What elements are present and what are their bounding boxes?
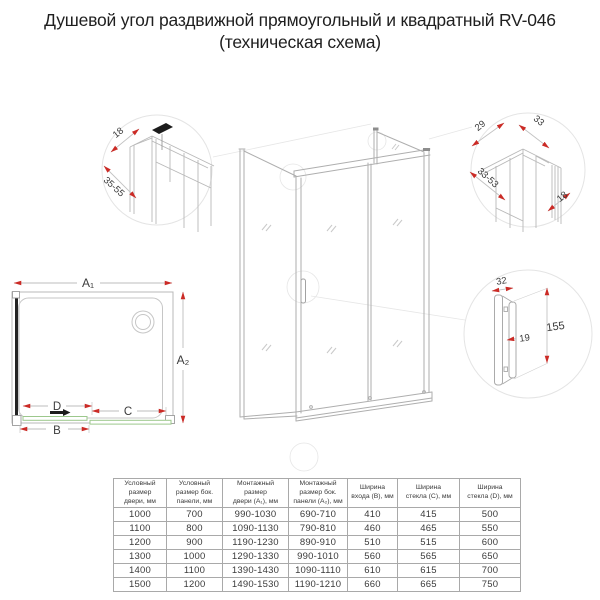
column-header: Монтажный размер бок. панели (A₂), мм	[289, 479, 348, 508]
table-cell: 1490-1530	[223, 578, 289, 592]
table-cell: 1500	[114, 578, 167, 592]
detail-handle: 32 19 155	[492, 275, 566, 385]
table-row: 1100 800 1090-1130 790-810 460 465 550	[114, 522, 521, 536]
detail-top-left: 18 35-55	[101, 123, 214, 232]
plan-label-b: B	[53, 425, 61, 437]
table-row: 1300 1000 1290-1330 990-1010 560 565 650	[114, 550, 521, 564]
plan-view: A₁ A₂ D C B	[12, 276, 190, 437]
table-cell: 550	[460, 522, 521, 536]
table-cell: 1190-1230	[223, 536, 289, 550]
table-cell: 790-810	[289, 522, 348, 536]
side-panel-glass	[15, 296, 18, 417]
post-caps	[373, 128, 430, 152]
column-header: Ширина стекла (C), мм	[398, 479, 460, 508]
plan-outline	[12, 292, 173, 423]
table-cell: 600	[460, 536, 521, 550]
door-handle-3d	[301, 279, 306, 303]
roller-bracket	[152, 123, 173, 134]
page: Душевой угол раздвижной прямоугольный и …	[0, 0, 600, 600]
table-cell: 565	[398, 550, 460, 564]
table-cell: 665	[398, 578, 460, 592]
table-cell: 610	[348, 564, 398, 578]
dim-label-18-right: 18	[555, 189, 570, 204]
column-header: Монтажный размер двери (A₁), мм	[223, 479, 289, 508]
plan-label-d: D	[53, 401, 61, 413]
plan-label-a2: A₂	[177, 353, 190, 367]
table-cell: 615	[398, 564, 460, 578]
dim-label-18-left: 18	[111, 125, 126, 140]
table-cell: 1100	[167, 564, 223, 578]
shower-tray	[19, 298, 163, 418]
table-cell: 460	[348, 522, 398, 536]
drain-inner	[136, 315, 151, 330]
table-cell: 1290-1330	[223, 550, 289, 564]
table-cell: 465	[398, 522, 460, 536]
column-header: Ширина входа (B), мм	[348, 479, 398, 508]
column-header: Условный размер двери, мм	[114, 479, 167, 508]
plan-label-c: C	[124, 406, 132, 418]
table-cell: 510	[348, 536, 398, 550]
dim-label-19: 19	[519, 332, 531, 344]
table-cell: 1190-1210	[289, 578, 348, 592]
plan-dimension-lines	[14, 283, 183, 433]
table-cell: 800	[167, 522, 223, 536]
column-header: Ширина стекла (D), мм	[460, 479, 521, 508]
detail-top-right: 29 33 33-53 18	[470, 113, 570, 232]
table-cell: 990-1030	[223, 508, 289, 522]
table-header-row: Условный размер двери, мм Условный разме…	[114, 479, 521, 508]
table-cell: 1090-1130	[223, 522, 289, 536]
table-cell: 1090-1110	[289, 564, 348, 578]
plan-label-a1: A₁	[82, 276, 94, 290]
table-cell: 1000	[114, 508, 167, 522]
table-cell: 1100	[114, 522, 167, 536]
column-header: Условный размер бок. панели, мм	[167, 479, 223, 508]
table-row: 1400 1100 1390-1430 1090-1110 610 615 70…	[114, 564, 521, 578]
table-row: 1200 900 1190-1230 890-910 510 515 600	[114, 536, 521, 550]
table-cell: 500	[460, 508, 521, 522]
table-cell: 650	[460, 550, 521, 564]
table-cell: 660	[348, 578, 398, 592]
table-cell: 1200	[167, 578, 223, 592]
table-cell: 1200	[114, 536, 167, 550]
dim-label-32: 32	[495, 275, 507, 288]
wall-profiles	[13, 292, 175, 426]
table-cell: 990-1010	[289, 550, 348, 564]
table-row: 1500 1200 1490-1530 1190-1210 660 665 75…	[114, 578, 521, 592]
size-table: Условный размер двери, мм Условный разме…	[113, 478, 521, 592]
table-cell: 690-710	[289, 508, 348, 522]
table-cell: 410	[348, 508, 398, 522]
shower-enclosure-3d	[239, 130, 432, 421]
table-cell: 900	[167, 536, 223, 550]
table-cell: 415	[398, 508, 460, 522]
table-cell: 700	[167, 508, 223, 522]
table-cell: 1300	[114, 550, 167, 564]
dim-label-155: 155	[546, 320, 566, 334]
table-cell: 1390-1430	[223, 564, 289, 578]
table-cell: 1000	[167, 550, 223, 564]
table-cell: 700	[460, 564, 521, 578]
table-row: 1000 700 990-1030 690-710 410 415 500	[114, 508, 521, 522]
table-cell: 890-910	[289, 536, 348, 550]
table-cell: 750	[460, 578, 521, 592]
glass-reflection-marks	[262, 144, 402, 354]
table-cell: 560	[348, 550, 398, 564]
table-cell: 1400	[114, 564, 167, 578]
table-cell: 515	[398, 536, 460, 550]
